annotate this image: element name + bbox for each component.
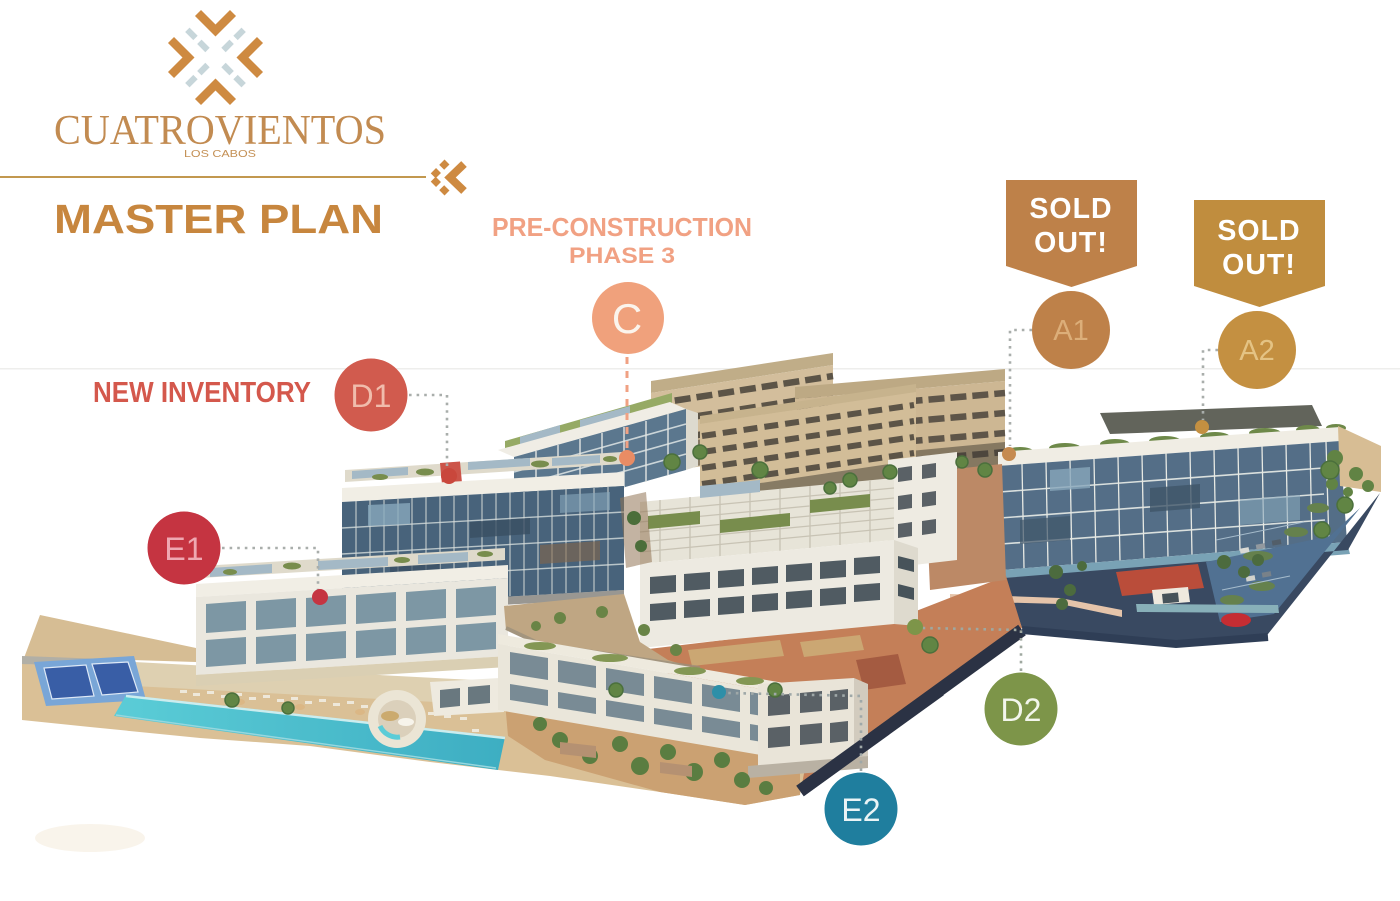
svg-text:PHASE 3: PHASE 3: [569, 243, 675, 268]
svg-text:SOLD: SOLD: [1217, 215, 1300, 247]
svg-text:SOLD: SOLD: [1029, 193, 1112, 225]
svg-text:D1: D1: [351, 378, 392, 414]
svg-text:C: C: [612, 295, 642, 342]
svg-text:NEW INVENTORY: NEW INVENTORY: [93, 377, 311, 409]
svg-text:LOS CABOS: LOS CABOS: [184, 148, 256, 160]
svg-text:OUT!: OUT!: [1222, 249, 1296, 281]
svg-text:A2: A2: [1239, 335, 1274, 367]
svg-text:A1: A1: [1053, 315, 1088, 347]
svg-text:PRE-CONSTRUCTION: PRE-CONSTRUCTION: [492, 212, 752, 242]
svg-text:E2: E2: [841, 792, 880, 828]
svg-text:OUT!: OUT!: [1034, 227, 1108, 259]
svg-text:MASTER PLAN: MASTER PLAN: [54, 196, 383, 242]
svg-text:D2: D2: [1001, 692, 1042, 728]
svg-text:E1: E1: [164, 531, 203, 567]
